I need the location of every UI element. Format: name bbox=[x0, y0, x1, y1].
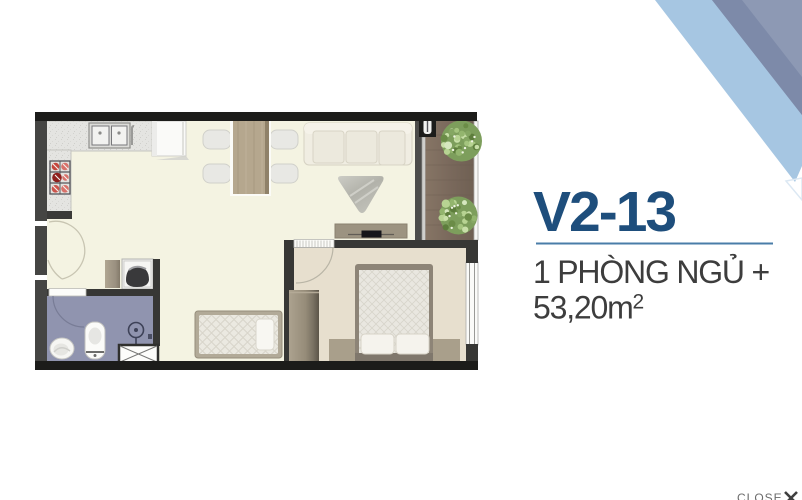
svg-text:CLOSE: CLOSE bbox=[737, 491, 783, 500]
svg-text:1 PHÒNG NGỦ +: 1 PHÒNG NGỦ + bbox=[533, 254, 770, 290]
svg-text:V2-13: V2-13 bbox=[533, 180, 675, 244]
svg-text:53,20m2: 53,20m2 bbox=[533, 290, 644, 326]
